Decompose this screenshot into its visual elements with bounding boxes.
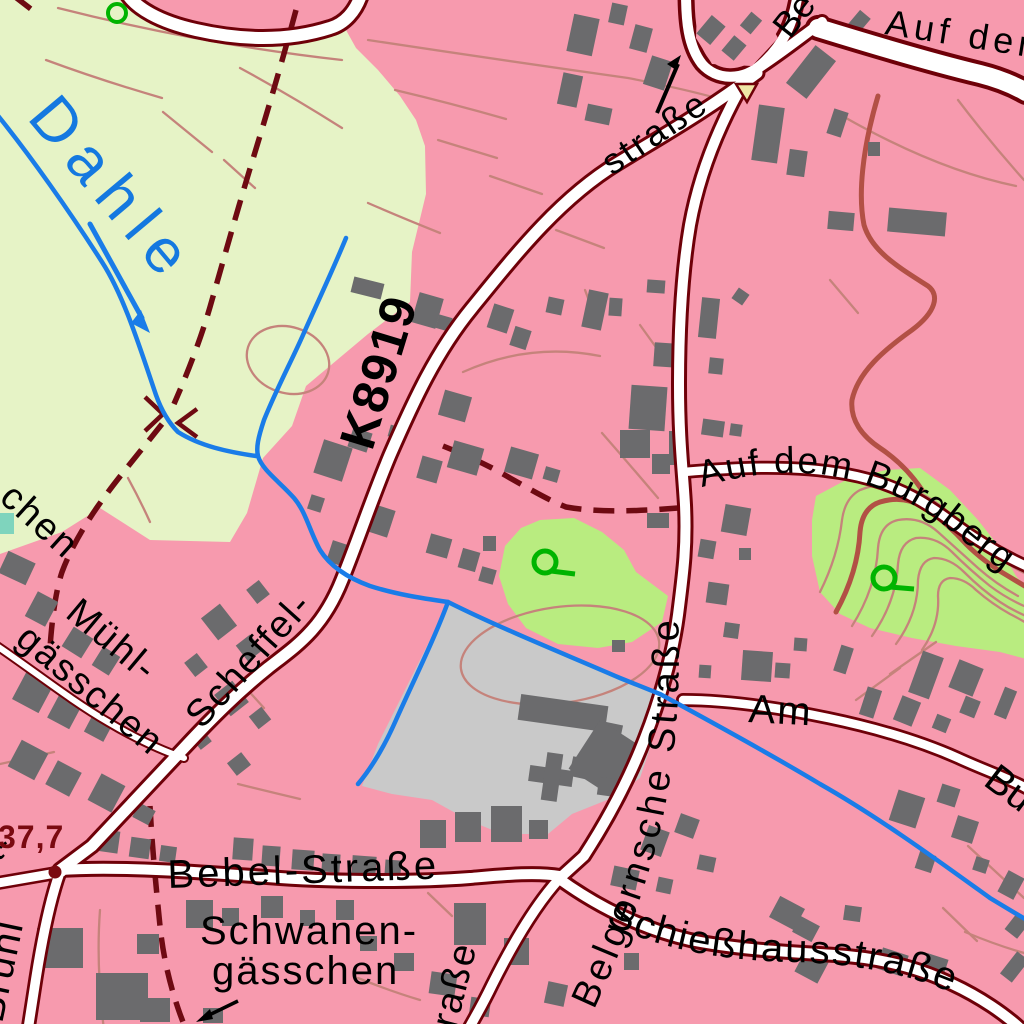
spot-elevation-label: 37,7 (0, 819, 64, 855)
street-label-am: Am (748, 687, 814, 734)
street-label-schwanen-2: gässchen (212, 949, 399, 993)
map-canvas[interactable]: Dahle K8919 straße Be Auf dem Auf dem Bu… (0, 0, 1024, 1024)
junction-dot-icon (49, 866, 62, 879)
topo-map[interactable]: Dahle K8919 straße Be Auf dem Auf dem Bu… (0, 0, 1024, 1024)
street-label-schwanen-1: Schwanen- (200, 909, 418, 953)
